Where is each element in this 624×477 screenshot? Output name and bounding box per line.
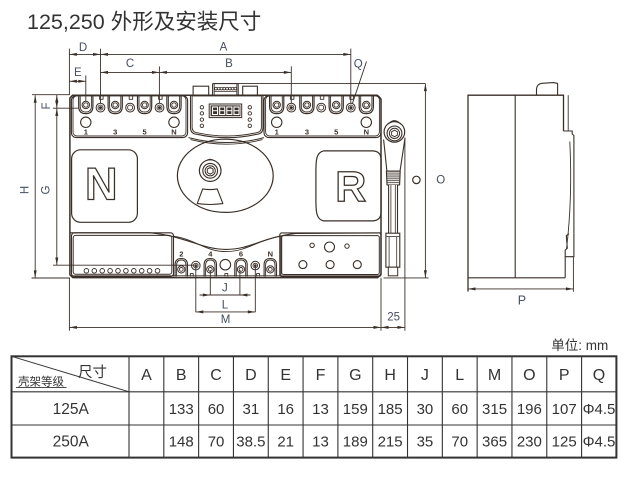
svg-text:5: 5 xyxy=(334,127,338,136)
svg-text:189: 189 xyxy=(343,433,368,450)
svg-text:壳架等级: 壳架等级 xyxy=(18,375,64,389)
svg-text:365: 365 xyxy=(482,433,507,450)
svg-text:R: R xyxy=(335,163,366,211)
svg-text:N: N xyxy=(364,127,369,136)
svg-text:133: 133 xyxy=(169,401,194,418)
svg-text:3: 3 xyxy=(305,127,309,136)
svg-text:L: L xyxy=(455,367,464,384)
svg-text:J: J xyxy=(222,282,228,294)
svg-text:250A: 250A xyxy=(53,433,90,450)
svg-text:35: 35 xyxy=(417,433,434,450)
svg-text:B: B xyxy=(176,367,187,384)
svg-text:125A: 125A xyxy=(53,401,90,418)
svg-text:16: 16 xyxy=(277,401,294,418)
svg-text:60: 60 xyxy=(208,401,225,418)
svg-text:D: D xyxy=(79,42,87,54)
svg-text:30: 30 xyxy=(417,401,434,418)
svg-text:125: 125 xyxy=(552,433,577,450)
svg-text:13: 13 xyxy=(312,433,329,450)
svg-text:尺寸: 尺寸 xyxy=(78,364,107,381)
svg-text:2: 2 xyxy=(179,250,183,259)
svg-text:159: 159 xyxy=(343,401,368,418)
svg-text:148: 148 xyxy=(169,433,194,450)
svg-text:315: 315 xyxy=(482,401,507,418)
svg-text:N: N xyxy=(171,127,176,136)
svg-text:31: 31 xyxy=(243,401,260,418)
svg-text:E: E xyxy=(74,67,82,79)
svg-text:F: F xyxy=(316,367,326,384)
svg-text:P: P xyxy=(559,367,570,384)
svg-text:25: 25 xyxy=(387,312,400,324)
svg-text:230: 230 xyxy=(517,433,542,450)
svg-text:H: H xyxy=(20,186,32,194)
svg-text:Φ4.5: Φ4.5 xyxy=(583,401,616,418)
svg-text:C: C xyxy=(210,367,222,384)
svg-text:M: M xyxy=(488,367,501,384)
svg-text:3: 3 xyxy=(113,127,117,136)
svg-text:H: H xyxy=(384,367,396,384)
svg-text:Φ4.5: Φ4.5 xyxy=(583,433,616,450)
svg-text:107: 107 xyxy=(552,401,577,418)
svg-text:196: 196 xyxy=(517,401,542,418)
svg-text:21: 21 xyxy=(277,433,294,450)
svg-text:1: 1 xyxy=(84,127,88,136)
svg-text:L: L xyxy=(222,299,229,311)
svg-text:Q: Q xyxy=(593,367,605,384)
svg-text:单位: mm: 单位: mm xyxy=(551,338,608,353)
svg-text:E: E xyxy=(280,367,291,384)
svg-text:1: 1 xyxy=(275,127,279,136)
svg-text:O: O xyxy=(436,174,445,186)
svg-text:N: N xyxy=(85,158,118,209)
svg-text:13: 13 xyxy=(312,401,329,418)
svg-text:B: B xyxy=(225,58,233,70)
svg-text:M: M xyxy=(221,314,231,326)
svg-text:A: A xyxy=(220,41,228,53)
svg-text:215: 215 xyxy=(378,433,403,450)
svg-text:60: 60 xyxy=(451,401,468,418)
svg-text:G: G xyxy=(41,185,53,194)
svg-text:C: C xyxy=(126,58,134,70)
svg-text:N: N xyxy=(268,250,273,259)
svg-text:70: 70 xyxy=(208,433,225,450)
svg-text:G: G xyxy=(349,367,361,384)
svg-text:125,250 外形及安装尺寸: 125,250 外形及安装尺寸 xyxy=(27,10,261,34)
svg-text:185: 185 xyxy=(378,401,403,418)
svg-text:F: F xyxy=(41,102,53,109)
svg-text:Q: Q xyxy=(354,59,363,71)
svg-text:O: O xyxy=(523,367,535,384)
svg-text:A: A xyxy=(141,367,152,384)
svg-text:6: 6 xyxy=(239,250,243,259)
svg-text:5: 5 xyxy=(143,127,147,136)
svg-text:70: 70 xyxy=(451,433,468,450)
svg-text:J: J xyxy=(421,367,429,384)
svg-text:D: D xyxy=(245,367,257,384)
svg-text:P: P xyxy=(518,294,526,308)
svg-text:38.5: 38.5 xyxy=(236,433,265,450)
